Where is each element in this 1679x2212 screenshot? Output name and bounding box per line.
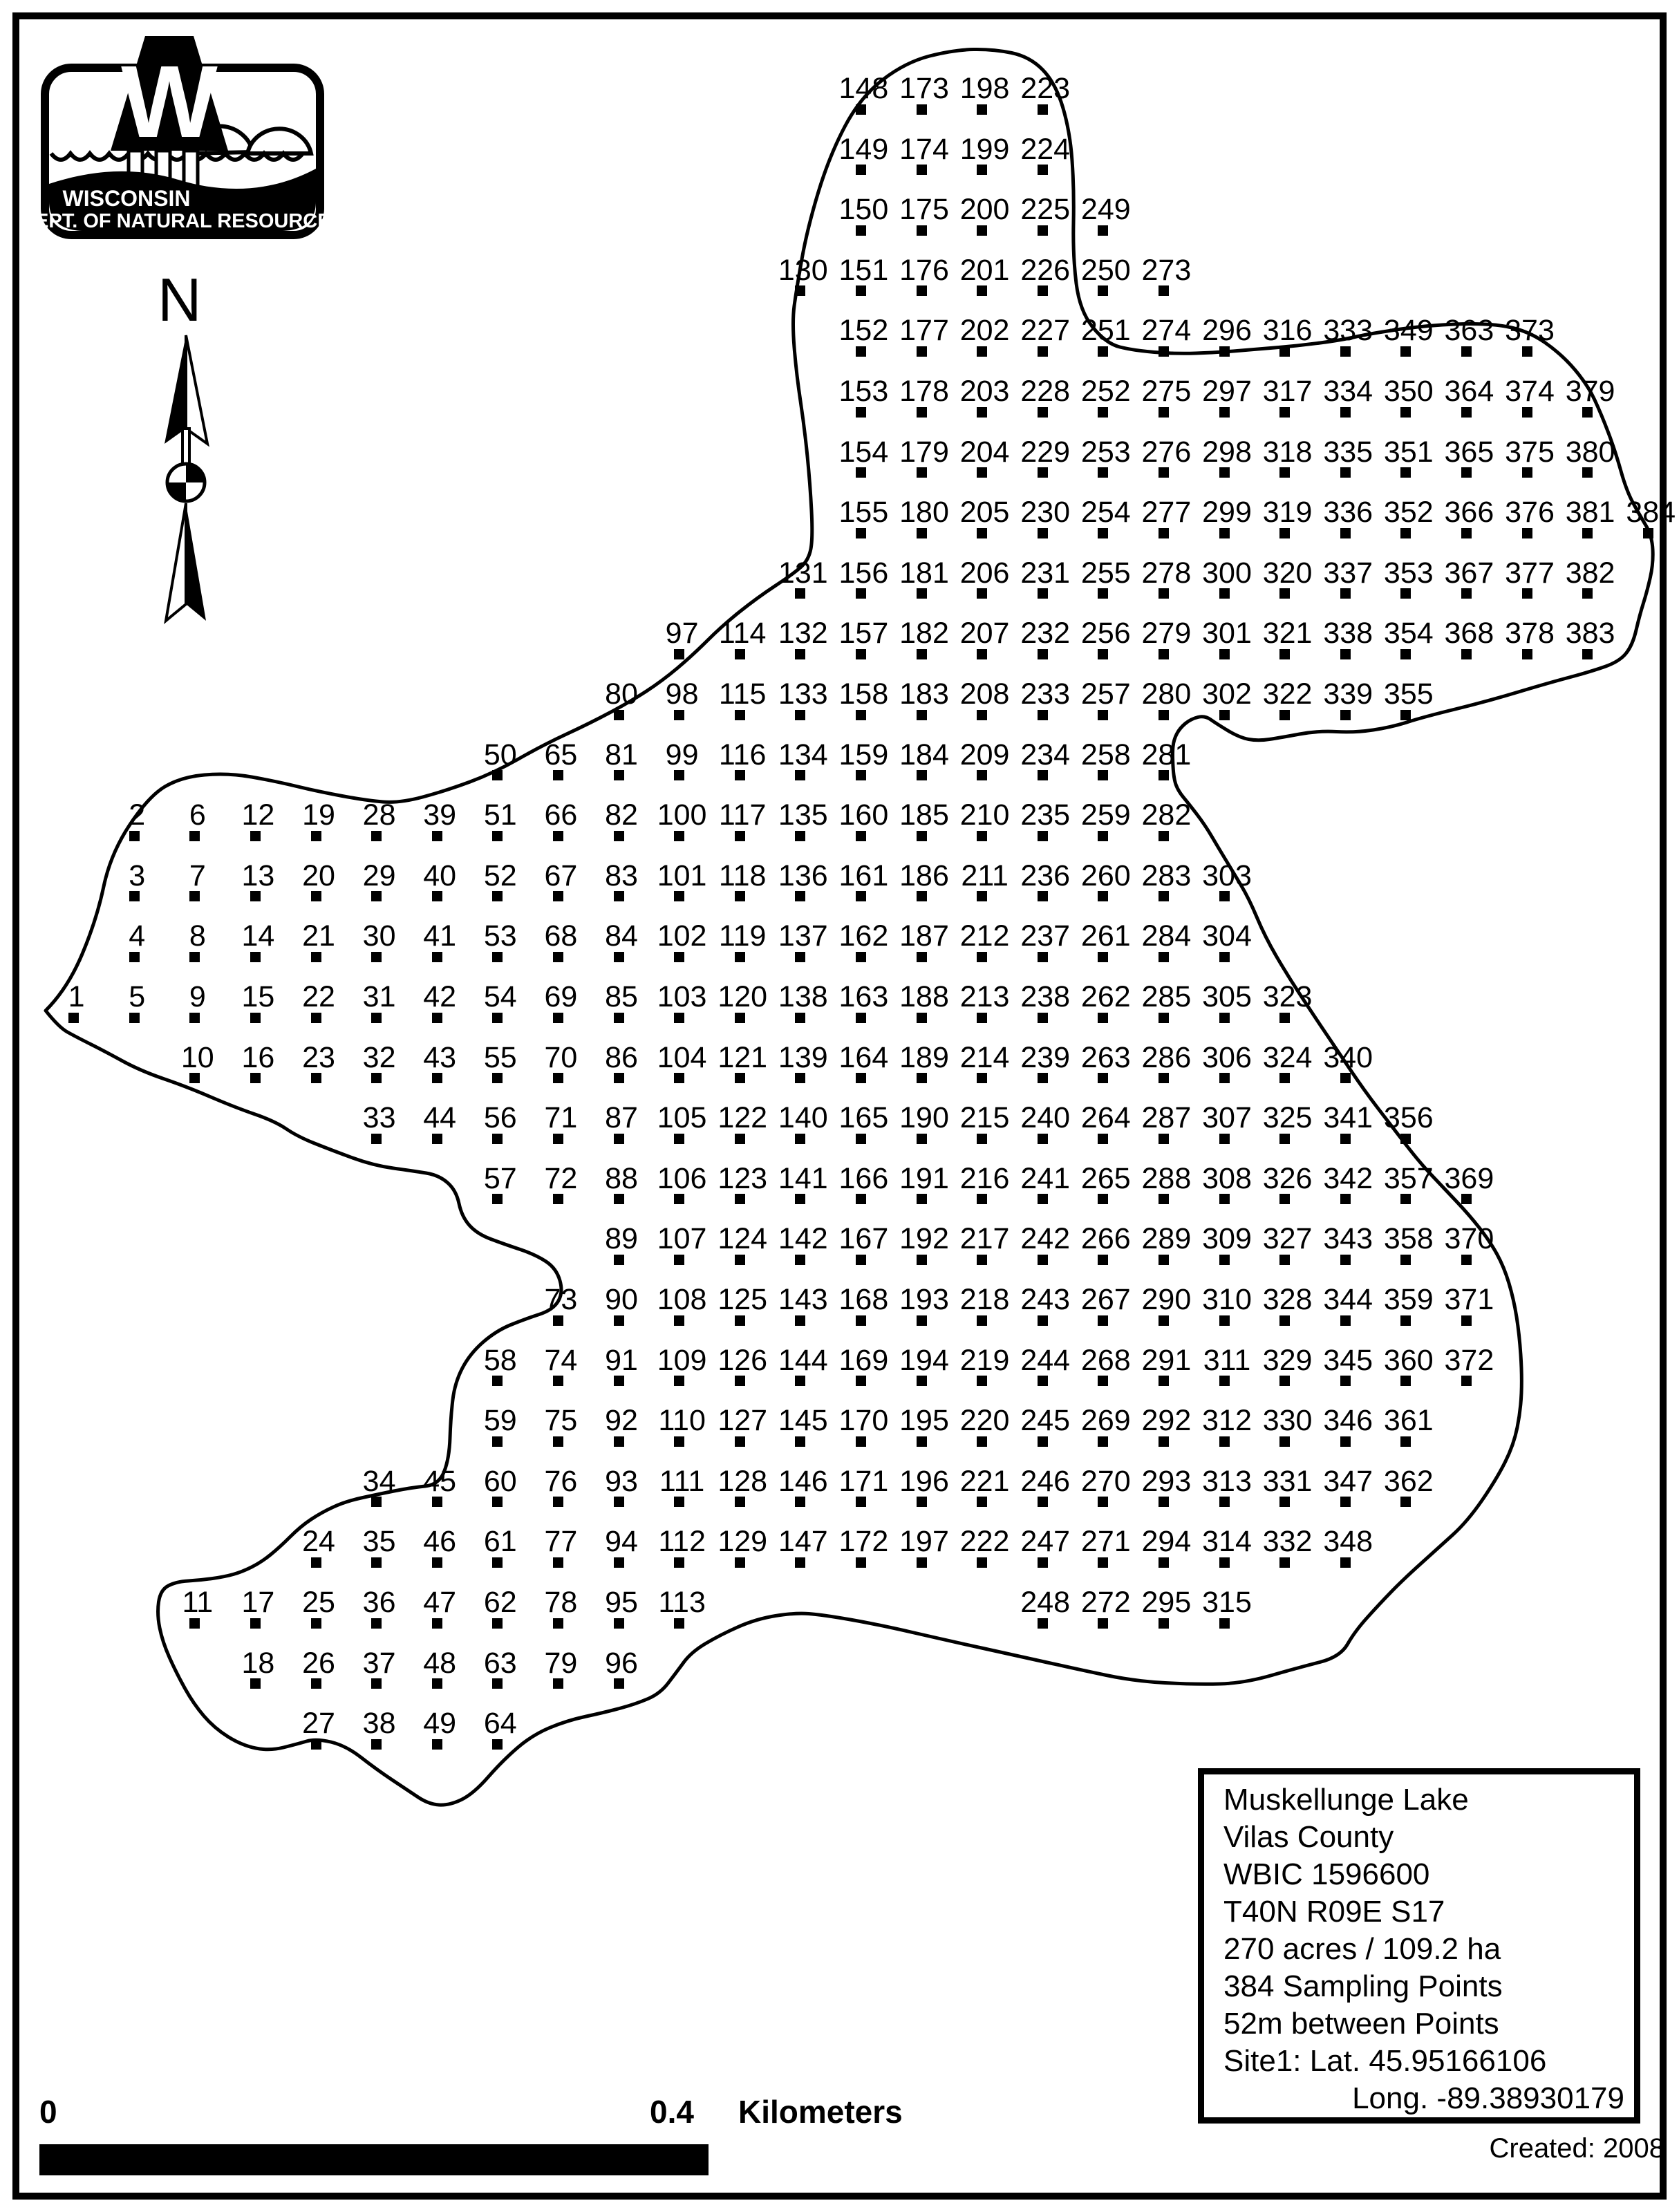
wisconsin-dnr-logo: W WISCONSIN DEPT. OF NATURAL RESOURCES — [40, 28, 325, 242]
sampling-point-marker — [1098, 1013, 1108, 1023]
sampling-point-marker — [1219, 649, 1230, 659]
sampling-point-marker — [553, 831, 563, 841]
sampling-point-marker — [1219, 891, 1230, 901]
sampling-point-label: 316 — [1263, 315, 1313, 346]
sampling-point-label: 80 — [605, 679, 638, 709]
sampling-point-marker — [311, 952, 321, 962]
sampling-point-label: 37 — [363, 1648, 396, 1678]
sampling-point-marker — [1219, 1194, 1230, 1204]
sampling-point-marker — [553, 1557, 563, 1568]
sampling-point-label: 108 — [657, 1284, 707, 1315]
sampling-point-label: 20 — [302, 861, 335, 891]
sampling-point-marker — [1582, 588, 1593, 599]
sampling-point-label: 72 — [544, 1163, 577, 1194]
sampling-point-marker — [856, 285, 866, 296]
sampling-point-marker — [856, 649, 866, 659]
sampling-point-label: 84 — [605, 921, 638, 951]
sampling-point-marker — [1279, 1073, 1290, 1083]
sampling-point-marker — [917, 528, 927, 538]
sampling-point-marker — [1279, 467, 1290, 478]
sampling-point-label: 64 — [484, 1708, 517, 1738]
sampling-point-marker — [856, 1073, 866, 1083]
sampling-point-label: 82 — [605, 800, 638, 830]
sampling-point-marker — [1098, 285, 1108, 296]
sampling-point-marker — [1159, 1194, 1169, 1204]
sampling-point-label: 208 — [960, 679, 1010, 709]
sampling-point-marker — [371, 1678, 382, 1689]
sampling-point-label: 192 — [899, 1224, 949, 1254]
sampling-point-label: 177 — [899, 315, 949, 346]
sampling-point-marker — [1219, 1255, 1230, 1265]
sampling-point-marker — [371, 1739, 382, 1750]
sampling-point-marker — [250, 1073, 261, 1083]
sampling-point-label: 146 — [778, 1466, 828, 1497]
sampling-point-label: 304 — [1202, 921, 1252, 951]
sampling-point-label: 77 — [544, 1526, 577, 1557]
sampling-point-marker — [553, 952, 563, 962]
sampling-point-marker — [795, 1134, 805, 1144]
sampling-point-marker — [1279, 710, 1290, 720]
sampling-point-marker — [1159, 891, 1169, 901]
sampling-point-marker — [189, 1618, 200, 1629]
sampling-point-marker — [1219, 1134, 1230, 1144]
sampling-point-marker — [674, 891, 684, 901]
sampling-point-marker — [1279, 1013, 1290, 1023]
sampling-point-label: 23 — [302, 1042, 335, 1073]
sampling-point-label: 319 — [1263, 497, 1313, 527]
sampling-point-marker — [856, 831, 866, 841]
sampling-point-marker — [1159, 952, 1169, 962]
sampling-point-marker — [917, 1376, 927, 1386]
sampling-point-label: 260 — [1081, 861, 1131, 891]
sampling-point-marker — [977, 1315, 987, 1326]
sampling-point-label: 124 — [717, 1224, 767, 1254]
sampling-point-marker — [1038, 891, 1048, 901]
sampling-point-marker — [1219, 710, 1230, 720]
sampling-point-label: 280 — [1142, 679, 1192, 709]
sampling-point-marker — [1038, 285, 1048, 296]
sampling-point-label: 369 — [1445, 1163, 1494, 1194]
sampling-point-marker — [614, 770, 624, 780]
sampling-point-marker — [1461, 1194, 1472, 1204]
sampling-point-label: 110 — [658, 1405, 706, 1436]
sampling-point-label: 91 — [605, 1345, 638, 1376]
sampling-point-marker — [795, 1376, 805, 1386]
sampling-point-label: 119 — [719, 921, 767, 951]
sampling-point-marker — [1219, 1557, 1230, 1568]
sampling-point-marker — [1038, 1618, 1048, 1629]
sampling-point-marker — [129, 952, 140, 962]
sampling-point-label: 155 — [839, 497, 889, 527]
sampling-point-marker — [553, 1618, 563, 1629]
sampling-point-label: 166 — [839, 1163, 889, 1194]
sampling-point-marker — [856, 1013, 866, 1023]
sampling-point-label: 111 — [659, 1466, 704, 1497]
sampling-point-label: 254 — [1081, 497, 1131, 527]
sampling-point-label: 68 — [544, 921, 577, 951]
sampling-point-label: 74 — [544, 1345, 577, 1376]
sampling-point-label: 43 — [423, 1042, 456, 1073]
sampling-point-label: 371 — [1445, 1284, 1494, 1315]
sampling-point-marker — [917, 346, 927, 357]
sampling-point-label: 181 — [899, 558, 949, 588]
lake-info-box: Muskellunge Lake Vilas County WBIC 15966… — [1198, 1768, 1640, 2124]
sampling-point-marker — [1522, 407, 1532, 418]
county: Vilas County — [1223, 1819, 1624, 1856]
sampling-point-label: 28 — [363, 800, 396, 830]
sampling-point-label: 345 — [1323, 1345, 1373, 1376]
sampling-point-label: 210 — [960, 800, 1010, 830]
sampling-point-marker — [735, 1013, 745, 1023]
sampling-point-marker — [795, 1315, 805, 1326]
sampling-point-label: 309 — [1202, 1224, 1252, 1254]
sampling-point-label: 61 — [484, 1526, 517, 1557]
sampling-point-marker — [795, 1436, 805, 1447]
sampling-point-label: 81 — [605, 740, 638, 770]
sampling-point-label: 130 — [778, 255, 828, 285]
sampling-point-marker — [1400, 528, 1411, 538]
sampling-point-label: 144 — [778, 1345, 828, 1376]
sampling-point-marker — [856, 528, 866, 538]
sampling-point-label: 283 — [1142, 861, 1192, 891]
sampling-point-marker — [1038, 528, 1048, 538]
sampling-point-marker — [977, 588, 987, 599]
sampling-point-label: 275 — [1142, 376, 1192, 406]
sampling-point-label: 38 — [363, 1708, 396, 1738]
sampling-point-label: 127 — [717, 1405, 767, 1436]
scale-end-label: 0.4 — [636, 2093, 708, 2130]
sampling-point-marker — [674, 1376, 684, 1386]
sampling-point-marker — [1582, 467, 1593, 478]
sampling-point-marker — [432, 831, 442, 841]
sampling-point-label: 94 — [605, 1526, 638, 1557]
sampling-point-label: 238 — [1020, 982, 1070, 1012]
sampling-point-label: 297 — [1202, 376, 1252, 406]
sampling-point-label: 48 — [423, 1648, 456, 1678]
sampling-point-label: 107 — [657, 1224, 707, 1254]
sampling-point-marker — [977, 1134, 987, 1144]
sampling-point-marker — [977, 346, 987, 357]
sampling-point-label: 49 — [423, 1708, 456, 1738]
sampling-point-label: 198 — [960, 73, 1010, 104]
sampling-point-label: 145 — [778, 1405, 828, 1436]
sampling-point-marker — [492, 1073, 503, 1083]
sampling-point-marker — [977, 104, 987, 115]
created-label: Created: 2008 — [1489, 2133, 1664, 2164]
sampling-point-marker — [311, 891, 321, 901]
sampling-point-label: 25 — [302, 1587, 335, 1618]
sampling-point-label: 199 — [960, 134, 1010, 165]
sampling-point-marker — [856, 710, 866, 720]
sampling-point-label: 231 — [1020, 558, 1070, 588]
sampling-point-label: 171 — [839, 1466, 889, 1497]
sampling-point-marker — [917, 407, 927, 418]
sampling-point-marker — [553, 1194, 563, 1204]
sampling-point-marker — [1098, 1376, 1108, 1386]
sampling-point-marker — [250, 891, 261, 901]
sampling-point-marker — [1219, 346, 1230, 357]
sampling-point-label: 293 — [1142, 1466, 1192, 1497]
sampling-point-marker — [977, 1073, 987, 1083]
sampling-point-marker — [674, 1557, 684, 1568]
sampling-point-marker — [1400, 1134, 1411, 1144]
sampling-point-label: 99 — [666, 740, 699, 770]
sampling-point-label: 348 — [1323, 1526, 1373, 1557]
sampling-point-label: 17 — [241, 1587, 274, 1618]
sampling-point-label: 63 — [484, 1648, 517, 1678]
sampling-point-marker — [1098, 528, 1108, 538]
sampling-point-label: 263 — [1081, 1042, 1131, 1073]
sampling-point-label: 329 — [1263, 1345, 1313, 1376]
sampling-point-label: 365 — [1445, 437, 1494, 467]
sampling-point-label: 115 — [719, 679, 767, 709]
sampling-point-label: 150 — [839, 194, 889, 225]
sampling-point-marker — [432, 1618, 442, 1629]
sampling-point-label: 75 — [544, 1405, 577, 1436]
sampling-point-label: 26 — [302, 1648, 335, 1678]
sampling-point-marker — [917, 1194, 927, 1204]
sampling-point-marker — [1159, 1497, 1169, 1507]
sampling-point-label: 258 — [1081, 740, 1131, 770]
sampling-point-marker — [795, 831, 805, 841]
sampling-point-marker — [189, 952, 200, 962]
sampling-point-marker — [735, 1376, 745, 1386]
sampling-point-marker — [735, 952, 745, 962]
sampling-point-marker — [311, 831, 321, 841]
sampling-point-label: 148 — [839, 73, 889, 104]
sampling-point-marker — [1279, 1315, 1290, 1326]
sampling-point-marker — [432, 1557, 442, 1568]
sampling-point-label: 380 — [1566, 437, 1615, 467]
sampling-point-label: 190 — [899, 1103, 949, 1133]
sampling-point-label: 241 — [1020, 1163, 1070, 1194]
sampling-point-label: 284 — [1142, 921, 1192, 951]
sampling-point-marker — [1279, 1436, 1290, 1447]
sampling-point-label: 370 — [1445, 1224, 1494, 1254]
sampling-point-marker — [1038, 1497, 1048, 1507]
sampling-point-marker — [917, 831, 927, 841]
sampling-point-label: 76 — [544, 1466, 577, 1497]
sampling-point-marker — [1279, 1497, 1290, 1507]
sampling-point-marker — [674, 1315, 684, 1326]
sampling-point-label: 244 — [1020, 1345, 1070, 1376]
sampling-point-marker — [977, 528, 987, 538]
sampling-point-label: 256 — [1081, 618, 1131, 648]
scale-unit-label: Kilometers — [738, 2093, 903, 2130]
site1-long: Long. -89.38930179 — [1223, 2080, 1624, 2117]
sampling-point-label: 135 — [778, 800, 828, 830]
sampling-point-marker — [1098, 1315, 1108, 1326]
sampling-point-label: 209 — [960, 740, 1010, 770]
sampling-point-label: 29 — [363, 861, 396, 891]
sampling-point-marker — [250, 1618, 261, 1629]
sampling-point-label: 191 — [899, 1163, 949, 1194]
sampling-point-label: 138 — [778, 982, 828, 1012]
sampling-point-marker — [1400, 1255, 1411, 1265]
sampling-point-label: 325 — [1263, 1103, 1313, 1133]
sampling-point-marker — [795, 952, 805, 962]
sampling-point-marker — [492, 1739, 503, 1750]
sampling-point-marker — [977, 285, 987, 296]
sampling-point-marker — [1038, 1315, 1048, 1326]
sampling-point-label: 206 — [960, 558, 1010, 588]
sampling-point-marker — [977, 1436, 987, 1447]
sampling-point-label: 203 — [960, 376, 1010, 406]
sampling-point-label: 332 — [1263, 1526, 1313, 1557]
sampling-point-marker — [977, 225, 987, 236]
sampling-point-marker — [917, 467, 927, 478]
sampling-point-label: 92 — [605, 1405, 638, 1436]
sampling-point-label: 134 — [778, 740, 828, 770]
sampling-point-label: 281 — [1142, 740, 1192, 770]
sampling-point-marker — [1461, 528, 1472, 538]
sampling-point-label: 117 — [719, 800, 767, 830]
sampling-point-marker — [492, 770, 503, 780]
logo-line1: WISCONSIN — [63, 186, 191, 211]
sampling-point-marker — [1098, 467, 1108, 478]
sampling-point-label: 204 — [960, 437, 1010, 467]
sampling-point-label: 179 — [899, 437, 949, 467]
sampling-point-marker — [1159, 528, 1169, 538]
sampling-point-marker — [1098, 710, 1108, 720]
sampling-point-marker — [977, 1255, 987, 1265]
sampling-point-marker — [1159, 1255, 1169, 1265]
sampling-point-marker — [432, 1134, 442, 1144]
point-count: 384 Sampling Points — [1223, 1968, 1624, 2005]
sampling-point-marker — [1038, 649, 1048, 659]
sampling-point-label: 270 — [1081, 1466, 1131, 1497]
sampling-point-marker — [1038, 588, 1048, 599]
sampling-point-label: 336 — [1323, 497, 1373, 527]
sampling-point-label: 4 — [129, 921, 145, 951]
sampling-point-marker — [1038, 1376, 1048, 1386]
sampling-point-marker — [1098, 1194, 1108, 1204]
sampling-point-marker — [1279, 649, 1290, 659]
sampling-point-label: 268 — [1081, 1345, 1131, 1376]
sampling-point-label: 215 — [960, 1103, 1010, 1133]
sampling-point-marker — [795, 1013, 805, 1023]
sampling-point-label: 79 — [544, 1648, 577, 1678]
sampling-point-marker — [735, 1436, 745, 1447]
sampling-point-marker — [432, 952, 442, 962]
sampling-point-label: 129 — [717, 1526, 767, 1557]
sampling-point-marker — [189, 1013, 200, 1023]
sampling-point-marker — [614, 831, 624, 841]
sampling-point-label: 125 — [717, 1284, 767, 1315]
sampling-point-label: 287 — [1142, 1103, 1192, 1133]
sampling-point-label: 211 — [961, 861, 1009, 891]
sampling-point-label: 310 — [1202, 1284, 1252, 1315]
sampling-point-marker — [977, 710, 987, 720]
sampling-point-marker — [1400, 407, 1411, 418]
sampling-point-marker — [917, 1436, 927, 1447]
sampling-point-marker — [1098, 649, 1108, 659]
sampling-point-marker — [795, 710, 805, 720]
sampling-point-marker — [1219, 1436, 1230, 1447]
sampling-point-marker — [553, 1134, 563, 1144]
sampling-point-marker — [1038, 467, 1048, 478]
sampling-point-marker — [371, 1134, 382, 1144]
sampling-point-marker — [735, 1557, 745, 1568]
sampling-point-label: 39 — [423, 800, 456, 830]
sampling-point-label: 196 — [899, 1466, 949, 1497]
sampling-point-marker — [432, 1739, 442, 1750]
sampling-point-marker — [674, 831, 684, 841]
sampling-point-label: 142 — [778, 1224, 828, 1254]
sampling-point-marker — [1159, 588, 1169, 599]
sampling-point-label: 36 — [363, 1587, 396, 1618]
sampling-point-marker — [614, 1013, 624, 1023]
sampling-point-label: 355 — [1384, 679, 1434, 709]
sampling-point-label: 101 — [657, 861, 707, 891]
sampling-point-marker — [250, 831, 261, 841]
sampling-point-label: 104 — [657, 1042, 707, 1073]
sampling-point-marker — [917, 225, 927, 236]
sampling-point-label: 245 — [1020, 1405, 1070, 1436]
sampling-point-label: 381 — [1566, 497, 1615, 527]
sampling-point-label: 45 — [423, 1466, 456, 1497]
sampling-point-label: 342 — [1323, 1163, 1373, 1194]
sampling-point-marker — [1098, 1618, 1108, 1629]
sampling-point-label: 222 — [960, 1526, 1010, 1557]
sampling-point-marker — [1522, 528, 1532, 538]
sampling-point-label: 312 — [1202, 1405, 1252, 1436]
sampling-point-marker — [1159, 407, 1169, 418]
township: T40N R09E S17 — [1223, 1893, 1624, 1931]
sampling-point-label: 95 — [605, 1587, 638, 1618]
sampling-point-marker — [614, 1436, 624, 1447]
sampling-point-marker — [1340, 1073, 1351, 1083]
sampling-point-marker — [1219, 1013, 1230, 1023]
sampling-point-label: 59 — [484, 1405, 517, 1436]
sampling-point-marker — [735, 1194, 745, 1204]
sampling-point-label: 350 — [1384, 376, 1434, 406]
sampling-point-label: 320 — [1263, 558, 1313, 588]
sampling-point-label: 305 — [1202, 982, 1252, 1012]
sampling-point-marker — [977, 1013, 987, 1023]
sampling-point-label: 13 — [241, 861, 274, 891]
sampling-point-label: 379 — [1566, 376, 1615, 406]
sampling-point-label: 269 — [1081, 1405, 1131, 1436]
sampling-point-label: 1 — [68, 982, 85, 1012]
sampling-point-marker — [856, 1134, 866, 1144]
sampling-point-label: 42 — [423, 982, 456, 1012]
sampling-point-marker — [614, 1194, 624, 1204]
sampling-point-marker — [311, 1618, 321, 1629]
sampling-point-label: 235 — [1020, 800, 1070, 830]
sampling-point-label: 326 — [1263, 1163, 1313, 1194]
sampling-point-label: 27 — [302, 1708, 335, 1738]
sampling-point-marker — [492, 1376, 503, 1386]
sampling-point-label: 366 — [1445, 497, 1494, 527]
sampling-point-marker — [1340, 1315, 1351, 1326]
sampling-point-label: 62 — [484, 1587, 517, 1618]
sampling-point-label: 291 — [1142, 1345, 1192, 1376]
sampling-point-marker — [311, 1013, 321, 1023]
sampling-point-marker — [371, 1557, 382, 1568]
sampling-point-label: 133 — [778, 679, 828, 709]
sampling-point-marker — [856, 165, 866, 175]
sampling-point-marker — [1461, 649, 1472, 659]
sampling-point-marker — [977, 649, 987, 659]
sampling-point-marker — [856, 770, 866, 780]
sampling-point-marker — [795, 588, 805, 599]
sampling-point-label: 15 — [241, 982, 274, 1012]
sampling-point-label: 278 — [1142, 558, 1192, 588]
sampling-point-label: 237 — [1020, 921, 1070, 951]
sampling-point-label: 252 — [1081, 376, 1131, 406]
sampling-point-label: 298 — [1202, 437, 1252, 467]
